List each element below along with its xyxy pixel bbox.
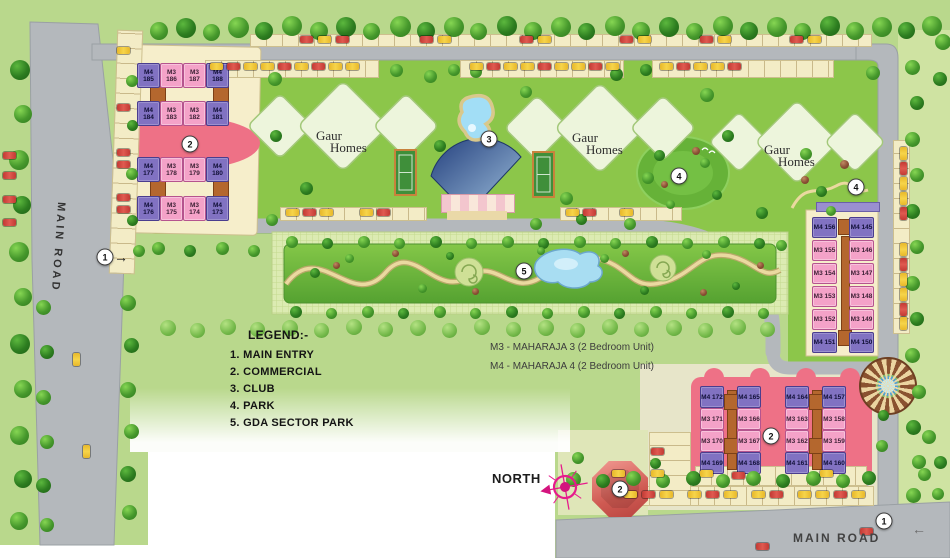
marker-commercial-northwest: 2 bbox=[182, 136, 199, 153]
marker-club: 3 bbox=[481, 131, 498, 148]
marker-park-central: 4 bbox=[671, 168, 688, 185]
legend-title: LEGEND:- bbox=[248, 328, 354, 342]
marker-commercial-octagon: 2 bbox=[612, 481, 629, 498]
road-direction-arrow-icon: ← bbox=[912, 521, 926, 537]
site-map-background bbox=[0, 0, 950, 558]
legend-item-commercial: 2. COMMERCIAL bbox=[230, 366, 354, 378]
marker-park-east: 4 bbox=[848, 179, 865, 196]
gaur-homes-label-3: GaurHomes bbox=[764, 144, 815, 168]
unit-key-m3: M3 - MAHARAJA 3 (2 Bedroom Unit) bbox=[490, 342, 654, 353]
main-road-label-bottom: MAIN ROAD bbox=[793, 531, 880, 545]
fountain-roundabout bbox=[859, 357, 917, 415]
unit-key-m4: M4 - MAHARAJA 4 (2 Bedroom Unit) bbox=[490, 361, 654, 372]
legend: LEGEND:- 1. MAIN ENTRY 2. COMMERCIAL 3. … bbox=[230, 328, 354, 429]
site-plan: M4 185M3 186M3 187M4 188M4 184M3 183M3 1… bbox=[0, 0, 950, 558]
marker-main-entry-south: 1 bbox=[876, 513, 893, 530]
compass-icon bbox=[538, 460, 592, 514]
unit-key: M3 - MAHARAJA 3 (2 Bedroom Unit) M4 - MA… bbox=[490, 342, 654, 380]
legend-item-club: 3. CLUB bbox=[230, 383, 354, 395]
legend-item-main-entry: 1. MAIN ENTRY bbox=[230, 349, 354, 361]
legend-item-park: 4. PARK bbox=[230, 400, 354, 412]
entry-arrow-icon: → bbox=[114, 249, 128, 265]
main-road-label-left: MAIN ROAD bbox=[52, 202, 86, 332]
marker-gda-sector-park: 5 bbox=[516, 263, 533, 280]
shaded-parking-strip bbox=[816, 202, 880, 212]
north-label: NORTH bbox=[492, 471, 541, 486]
gaur-homes-label-1: GaurHomes bbox=[316, 130, 367, 154]
marker-commercial-southeast: 2 bbox=[763, 428, 780, 445]
gaur-homes-label-2: GaurHomes bbox=[572, 132, 623, 156]
marker-main-entry-west: 1 bbox=[97, 249, 114, 266]
legend-item-gda-sector-park: 5. GDA SECTOR PARK bbox=[230, 417, 354, 429]
club-deck bbox=[447, 211, 507, 220]
